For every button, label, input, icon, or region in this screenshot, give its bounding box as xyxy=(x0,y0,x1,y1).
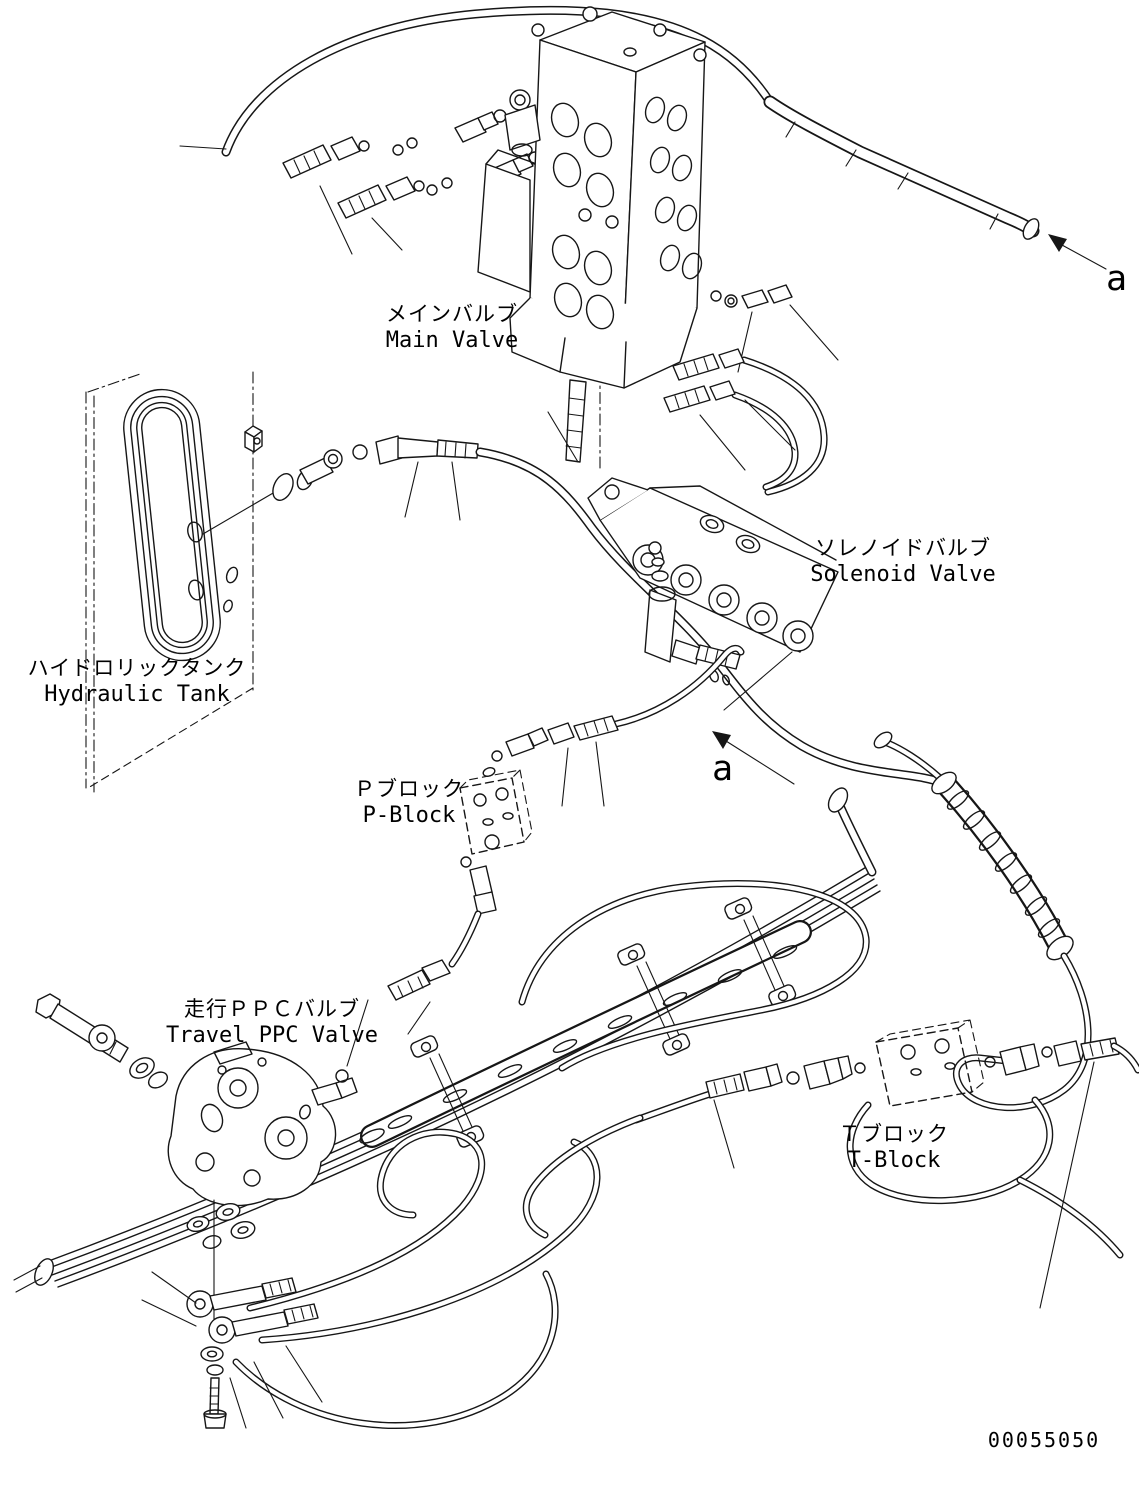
solenoid-valve-drawing xyxy=(588,478,838,710)
label-travel-ppc-valve: 走行ＰＰＣバルブ Travel PPC Valve xyxy=(166,996,378,1049)
label-hydraulic-tank-jp: ハイドロリックタンク xyxy=(28,655,247,681)
wrapped-hose-drawing xyxy=(850,729,1120,1255)
drawing-number: 00055050 xyxy=(988,1428,1100,1452)
view-marker-a-middle: a xyxy=(712,752,733,787)
travel-ppc-valve-drawing xyxy=(36,994,368,1428)
label-t-block: Ｔブロック T-Block xyxy=(839,1121,949,1174)
label-solenoid-valve-jp: ソレノイドバルブ xyxy=(810,535,995,561)
label-main-valve: メインバルブ Main Valve xyxy=(386,301,518,354)
view-arrow-top-right xyxy=(1048,234,1106,269)
label-hydraulic-tank-en: Hydraulic Tank xyxy=(28,681,247,708)
view-marker-a-top-right: a xyxy=(1106,262,1127,297)
label-p-block-en: P-Block xyxy=(354,802,464,829)
label-p-block: Ｐブロック P-Block xyxy=(354,776,464,829)
label-main-valve-jp: メインバルブ xyxy=(386,301,518,327)
label-hydraulic-tank: ハイドロリックタンク Hydraulic Tank xyxy=(28,655,247,708)
hose-bundle-drawing xyxy=(14,785,880,1292)
label-solenoid-valve-en: Solenoid Valve xyxy=(810,561,995,588)
diagram-line-art xyxy=(0,0,1139,1491)
t-block-drawing xyxy=(526,1020,1138,1308)
label-solenoid-valve: ソレノイドバルブ Solenoid Valve xyxy=(810,535,995,588)
label-main-valve-en: Main Valve xyxy=(386,327,518,354)
label-t-block-jp: Ｔブロック xyxy=(839,1121,949,1147)
label-travel-ppc-valve-jp: 走行ＰＰＣバルブ xyxy=(166,996,378,1022)
parts-diagram-page: メインバルブ Main Valve ハイドロリックタンク Hydraulic T… xyxy=(0,0,1139,1491)
label-travel-ppc-valve-en: Travel PPC Valve xyxy=(166,1022,378,1049)
hydraulic-tank-drawing xyxy=(86,372,478,792)
label-t-block-en: T-Block xyxy=(839,1147,949,1174)
label-p-block-jp: Ｐブロック xyxy=(354,776,464,802)
